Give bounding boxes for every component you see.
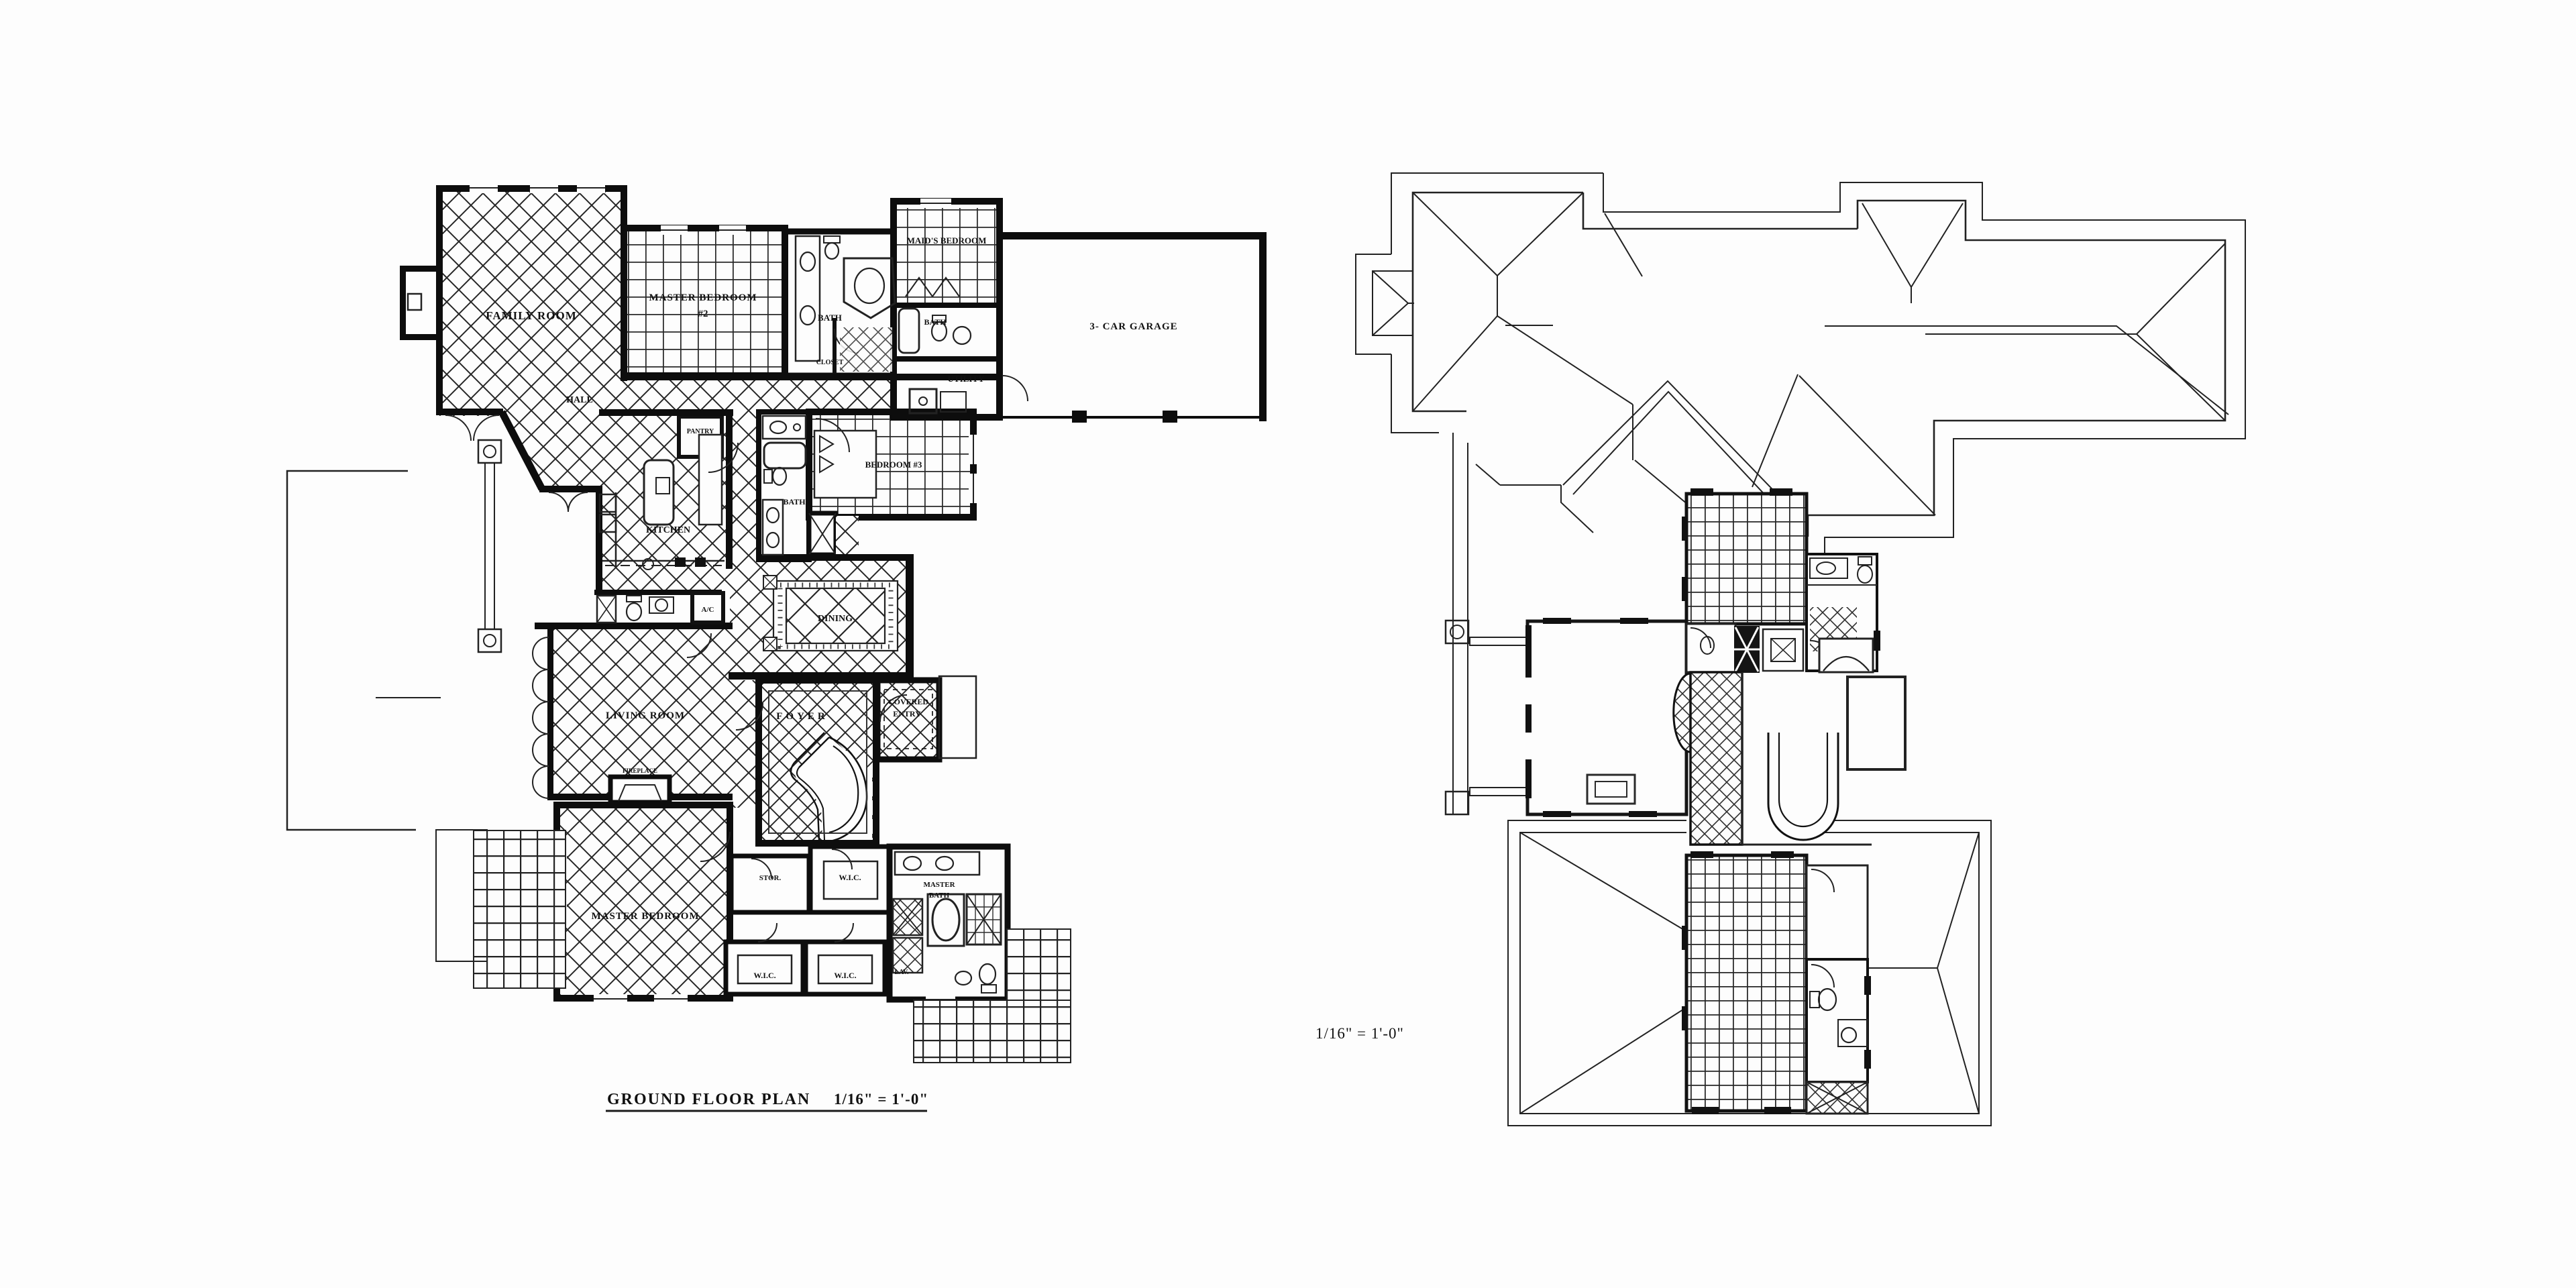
svg-text:MASTER BEDROOM: MASTER BEDROOM bbox=[649, 292, 757, 303]
svg-text:W.I.C.: W.I.C. bbox=[834, 971, 856, 980]
svg-text:W.I.C.: W.I.C. bbox=[753, 971, 775, 980]
svg-text:ENTRY: ENTRY bbox=[893, 709, 921, 718]
svg-text:1/16" = 1'-0": 1/16" = 1'-0" bbox=[1316, 1025, 1404, 1042]
svg-text:BATH: BATH bbox=[783, 497, 806, 506]
svg-text:CLOSET: CLOSET bbox=[816, 359, 844, 366]
svg-text:BATH: BATH bbox=[818, 313, 842, 323]
svg-text:PANTRY: PANTRY bbox=[687, 428, 714, 435]
svg-text:HALL: HALL bbox=[566, 395, 593, 405]
svg-text:FIREPLACE: FIREPLACE bbox=[623, 767, 657, 774]
svg-text:STOR.: STOR. bbox=[759, 874, 782, 882]
svg-text:#2: #2 bbox=[698, 309, 708, 319]
svg-text:LIVING ROOM: LIVING ROOM bbox=[606, 710, 685, 721]
svg-text:KITCHEN: KITCHEN bbox=[646, 525, 690, 535]
svg-text:MAID'S BEDROOM: MAID'S BEDROOM bbox=[907, 235, 987, 246]
svg-text:W.I.C.: W.I.C. bbox=[839, 873, 861, 882]
svg-text:BATH: BATH bbox=[929, 892, 950, 900]
svg-text:FAMILY ROOM: FAMILY ROOM bbox=[486, 309, 577, 322]
svg-text:FOYER: FOYER bbox=[776, 711, 828, 722]
svg-text:LAV.: LAV. bbox=[894, 969, 909, 976]
svg-text:BATH: BATH bbox=[924, 317, 947, 327]
svg-text:COVERED: COVERED bbox=[888, 697, 928, 706]
svg-text:A/C: A/C bbox=[702, 606, 714, 614]
svg-text:BEDROOM #3: BEDROOM #3 bbox=[865, 460, 922, 470]
svg-text:MASTER: MASTER bbox=[923, 881, 955, 889]
svg-text:DINING: DINING bbox=[818, 614, 853, 624]
svg-text:MASTER BEDROOM: MASTER BEDROOM bbox=[591, 911, 699, 922]
svg-text:3- CAR GARAGE: 3- CAR GARAGE bbox=[1089, 321, 1177, 332]
svg-text:GROUND FLOOR PLAN: GROUND FLOOR PLAN bbox=[607, 1091, 810, 1108]
svg-text:1/16" = 1'-0": 1/16" = 1'-0" bbox=[834, 1091, 928, 1108]
svg-text:UTILITY: UTILITY bbox=[948, 374, 985, 384]
